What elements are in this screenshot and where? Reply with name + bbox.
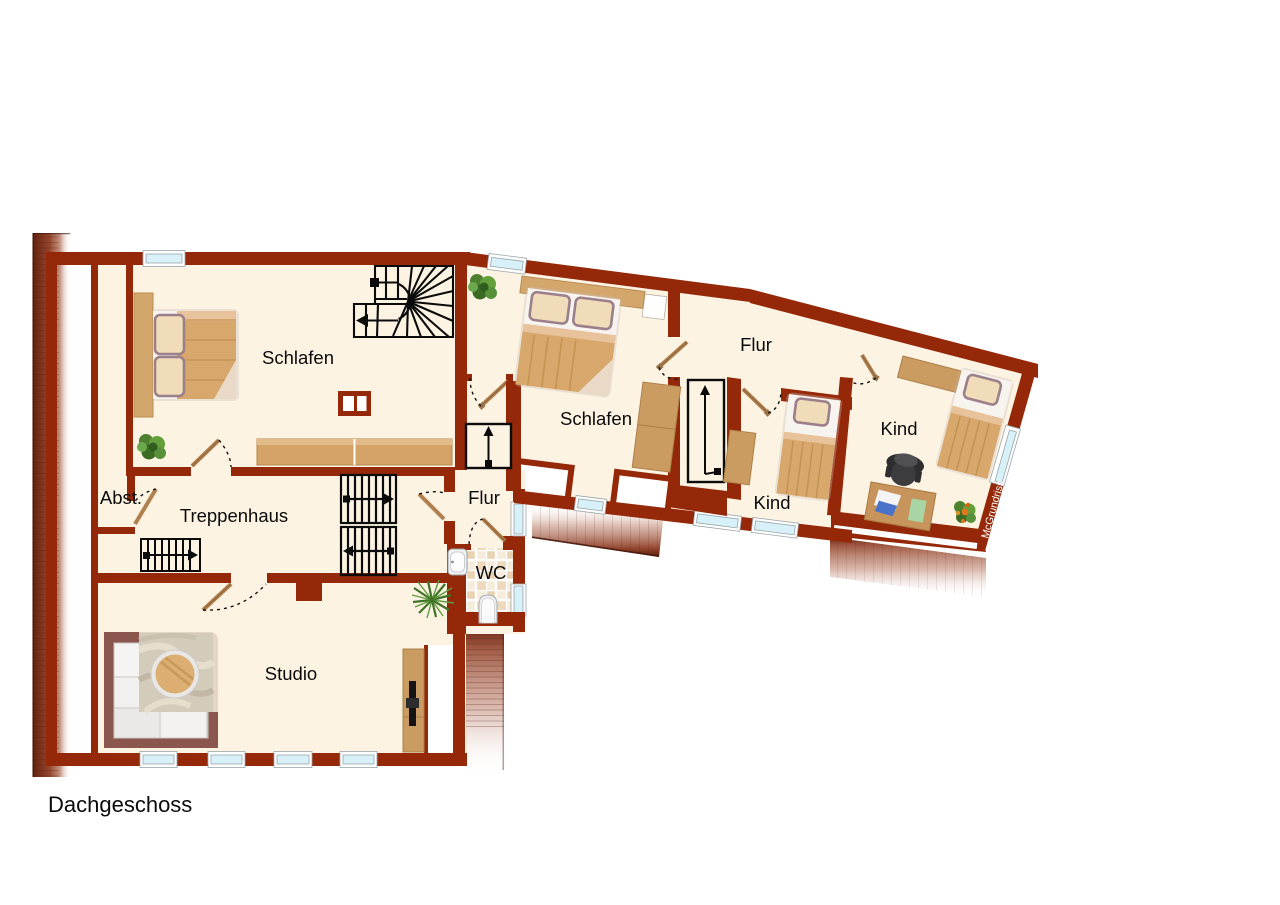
svg-text:Schlafen: Schlafen	[560, 408, 632, 429]
svg-text:Kind: Kind	[753, 492, 790, 513]
svg-text:Studio: Studio	[265, 663, 317, 684]
svg-text:Flur: Flur	[468, 487, 500, 508]
svg-text:WC: WC	[476, 562, 507, 583]
svg-text:Schlafen: Schlafen	[262, 347, 334, 368]
svg-text:Kind: Kind	[880, 418, 917, 439]
svg-text:Dachgeschoss: Dachgeschoss	[48, 792, 192, 817]
svg-text:Treppenhaus: Treppenhaus	[180, 505, 288, 526]
svg-text:Abst.: Abst.	[100, 487, 142, 508]
svg-text:Flur: Flur	[740, 334, 772, 355]
